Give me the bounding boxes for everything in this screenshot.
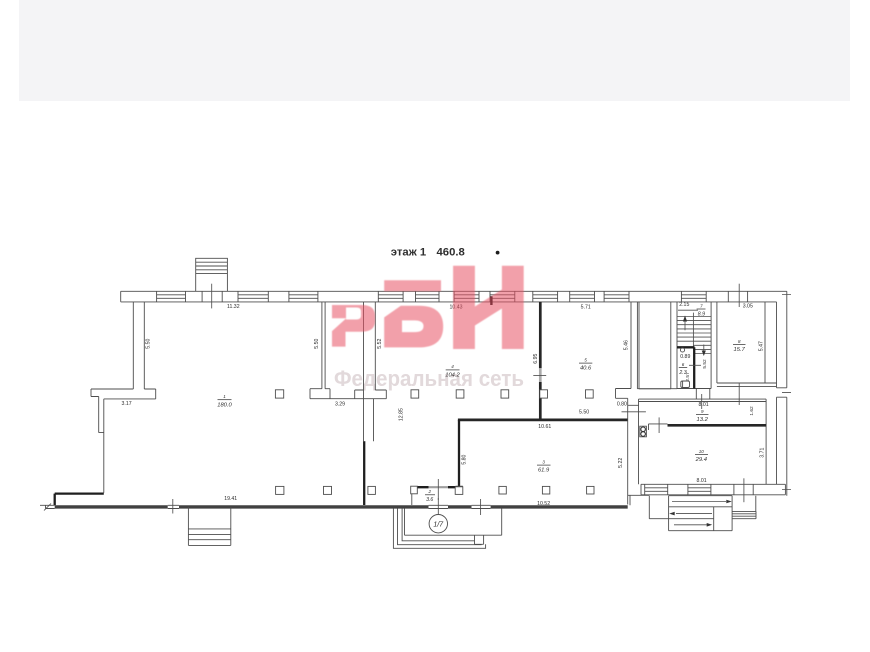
- svg-text:29.4: 29.4: [695, 457, 707, 463]
- svg-text:180.0: 180.0: [217, 402, 232, 408]
- svg-text:19.41: 19.41: [224, 496, 237, 502]
- svg-text:10: 10: [699, 449, 705, 454]
- svg-text:2: 2: [427, 489, 431, 494]
- svg-text:3.17: 3.17: [122, 401, 132, 407]
- svg-text:1/7: 1/7: [433, 521, 444, 528]
- svg-text:3.05: 3.05: [743, 303, 753, 309]
- svg-text:10.61: 10.61: [538, 424, 551, 430]
- svg-text:8.9: 8.9: [698, 311, 705, 317]
- svg-text:3.6: 3.6: [426, 497, 433, 503]
- svg-text:8.01: 8.01: [697, 478, 707, 484]
- svg-text:104.2: 104.2: [445, 372, 460, 378]
- svg-text:5.71: 5.71: [581, 304, 591, 310]
- svg-text:61.9: 61.9: [538, 468, 550, 474]
- svg-text:3.71: 3.71: [759, 448, 765, 458]
- svg-text:5.52: 5.52: [702, 359, 708, 369]
- svg-text:5.50: 5.50: [314, 339, 320, 349]
- svg-text:0.80: 0.80: [617, 402, 627, 408]
- svg-text:5.50: 5.50: [579, 409, 589, 415]
- svg-text:1.62: 1.62: [749, 406, 755, 416]
- svg-text:5.47: 5.47: [759, 341, 765, 351]
- svg-text:11.32: 11.32: [227, 304, 240, 310]
- svg-text:3.29: 3.29: [335, 401, 345, 407]
- svg-text:5.22: 5.22: [618, 458, 624, 468]
- svg-text:460.8: 460.8: [437, 247, 465, 259]
- svg-text:2.57: 2.57: [685, 372, 691, 382]
- svg-text:12.85: 12.85: [398, 408, 404, 421]
- svg-text:8.01: 8.01: [699, 402, 709, 408]
- svg-text:этаж 1: этаж 1: [391, 247, 426, 259]
- svg-text:6.95: 6.95: [533, 354, 539, 364]
- svg-text:13.2: 13.2: [697, 417, 709, 423]
- svg-text:5.46: 5.46: [623, 340, 629, 350]
- svg-text:0.89: 0.89: [680, 354, 690, 360]
- svg-text:5.52: 5.52: [377, 339, 383, 349]
- svg-text:Федеральная сеть: Федеральная сеть: [334, 366, 524, 391]
- svg-text:5.80: 5.80: [461, 454, 467, 464]
- svg-text:40.6: 40.6: [580, 366, 592, 372]
- svg-text:15.7: 15.7: [734, 347, 746, 353]
- svg-text:2.15: 2.15: [679, 302, 689, 308]
- svg-text:5.50: 5.50: [146, 339, 152, 349]
